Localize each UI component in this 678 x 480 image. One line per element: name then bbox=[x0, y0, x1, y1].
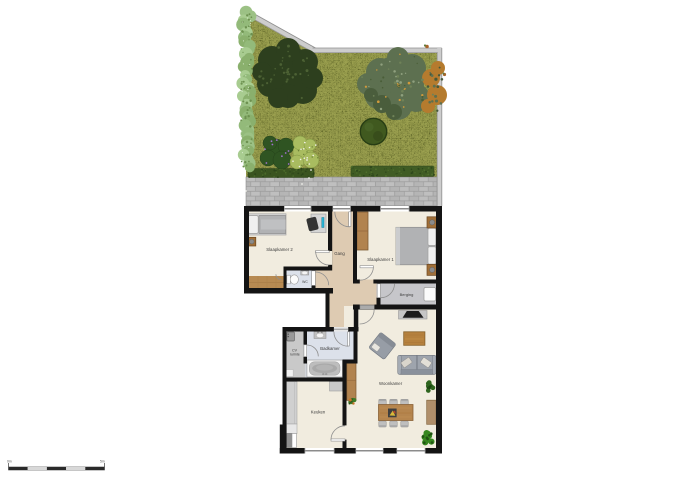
svg-text:Slaapkamer 1: Slaapkamer 1 bbox=[367, 257, 394, 262]
svg-text:WC: WC bbox=[302, 280, 308, 284]
svg-text:Berging: Berging bbox=[400, 292, 414, 297]
svg-text:5m: 5m bbox=[100, 460, 105, 464]
svg-text:Keuken: Keuken bbox=[311, 410, 326, 415]
svg-text:ruimte: ruimte bbox=[290, 353, 300, 357]
svg-text:CV: CV bbox=[292, 348, 298, 352]
svg-text:Woonkamer: Woonkamer bbox=[379, 381, 403, 386]
svg-text:0m: 0m bbox=[7, 460, 12, 464]
svg-text:Badkamer: Badkamer bbox=[320, 346, 340, 351]
svg-text:Slaapkamer 2: Slaapkamer 2 bbox=[266, 247, 293, 252]
svg-text:Gang: Gang bbox=[334, 251, 345, 256]
